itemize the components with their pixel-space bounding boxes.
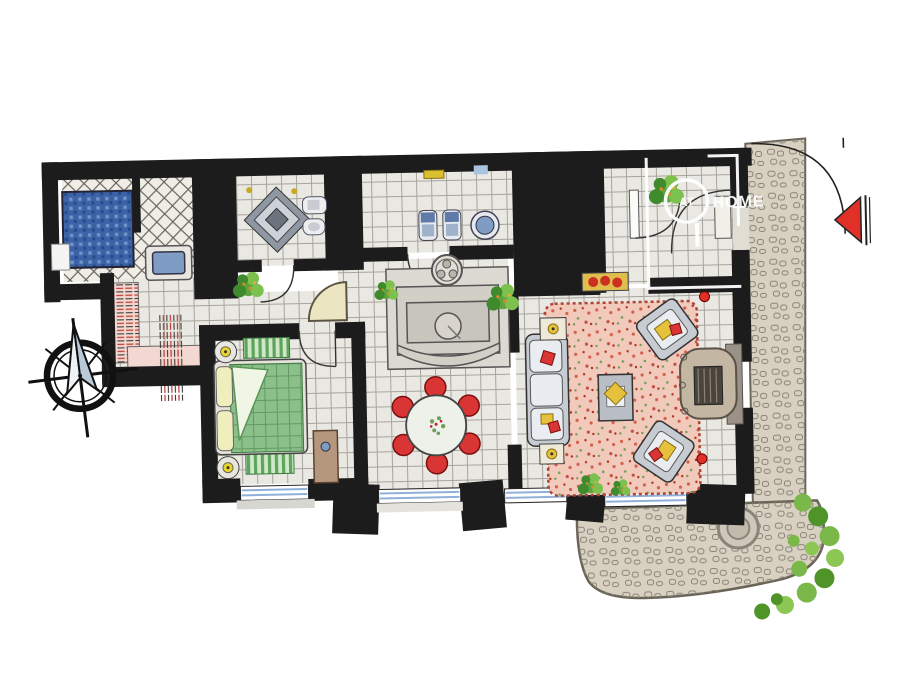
door-leaf xyxy=(629,190,639,238)
side-table xyxy=(540,444,564,464)
nightstand xyxy=(217,456,239,478)
bedside-rug xyxy=(246,453,294,474)
fireplace xyxy=(679,344,744,425)
double-bed xyxy=(214,359,308,455)
sofa xyxy=(525,334,569,447)
wardrobe xyxy=(313,430,338,482)
shelf xyxy=(424,170,444,178)
watermark-prefix: AT xyxy=(679,195,695,209)
corner-console xyxy=(308,282,347,321)
entrance-threshold xyxy=(733,208,750,250)
bidet xyxy=(443,210,462,240)
throw-pillow xyxy=(548,421,560,433)
dining-window xyxy=(376,488,462,513)
red-lamp-dot xyxy=(697,454,707,464)
pillow xyxy=(216,367,233,407)
toilet xyxy=(419,210,438,240)
coffee-table xyxy=(598,374,633,421)
bedroom-window xyxy=(236,485,314,510)
shower-tray xyxy=(62,191,134,268)
nightstand xyxy=(214,340,236,362)
watermark-name: HOME xyxy=(712,193,764,211)
side-table xyxy=(540,318,566,341)
toilet-lid xyxy=(307,200,319,210)
bathroom-top-floor xyxy=(360,169,514,254)
bedside-rug xyxy=(243,337,289,358)
floor-plan-image: AT HOME xyxy=(0,0,900,675)
floor-plan-drawing: AT HOME xyxy=(0,0,900,675)
entrance-arrow-icon xyxy=(834,197,861,243)
wall-niche xyxy=(51,244,70,270)
pillow xyxy=(217,411,234,451)
knob xyxy=(321,442,330,451)
wash-basin xyxy=(471,211,500,240)
bench xyxy=(582,272,628,291)
staircase-feature xyxy=(386,254,510,370)
bathtub xyxy=(145,245,192,280)
column-medallion xyxy=(432,255,463,286)
red-lamp-dot xyxy=(699,292,709,302)
vent xyxy=(474,165,488,174)
